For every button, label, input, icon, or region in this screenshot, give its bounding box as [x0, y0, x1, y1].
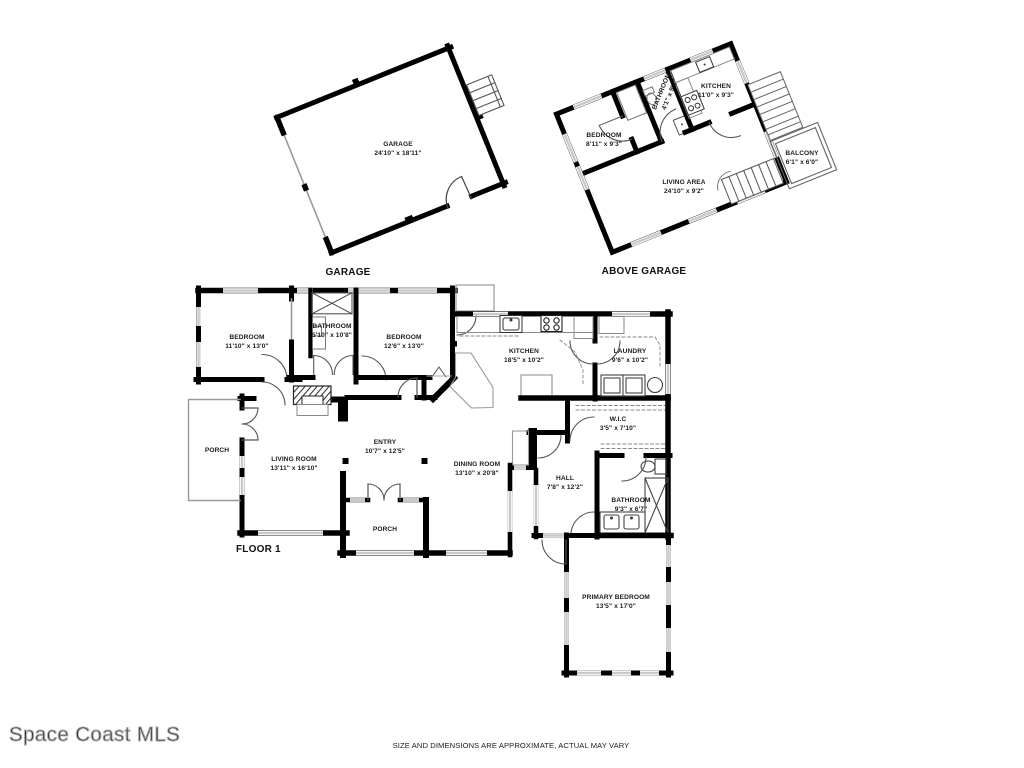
svg-text:7'8" x 12'2": 7'8" x 12'2"	[547, 484, 583, 491]
svg-text:ABOVE GARAGE: ABOVE GARAGE	[602, 266, 687, 277]
svg-text:LAUNDRY: LAUNDRY	[614, 348, 647, 355]
svg-text:KITCHEN: KITCHEN	[509, 348, 539, 355]
svg-text:11'10" x 13'0": 11'10" x 13'0"	[225, 343, 268, 350]
svg-text:9'6" x 10'2": 9'6" x 10'2"	[612, 357, 648, 364]
svg-text:LIVING AREA: LIVING AREA	[662, 179, 705, 186]
svg-text:KITCHEN: KITCHEN	[701, 83, 731, 90]
svg-text:5'10" x 10'8": 5'10" x 10'8"	[312, 332, 352, 339]
svg-text:24'10" x 18'11": 24'10" x 18'11"	[374, 150, 421, 157]
svg-text:PORCH: PORCH	[373, 526, 397, 533]
svg-text:11'0" x 9'3": 11'0" x 9'3"	[698, 92, 734, 99]
svg-text:9'3" x 6'7": 9'3" x 6'7"	[615, 506, 648, 513]
svg-text:BATHROOM: BATHROOM	[312, 323, 352, 330]
svg-text:24'10" x 9'2": 24'10" x 9'2"	[664, 188, 704, 195]
svg-text:6'1" x 6'0": 6'1" x 6'0"	[786, 159, 819, 166]
svg-text:13'5" x 17'0": 13'5" x 17'0"	[596, 603, 636, 610]
svg-text:BEDROOM: BEDROOM	[386, 334, 422, 341]
svg-text:13'10" x 20'8": 13'10" x 20'8"	[455, 470, 499, 477]
svg-text:BEDROOM: BEDROOM	[586, 132, 622, 139]
svg-text:Space Coast MLS: Space Coast MLS	[9, 723, 180, 746]
svg-text:10'7" x 12'5": 10'7" x 12'5"	[365, 448, 405, 455]
svg-text:18'5" x 10'2": 18'5" x 10'2"	[504, 357, 544, 364]
svg-text:8'11" x 9'3": 8'11" x 9'3"	[586, 141, 622, 148]
svg-text:3'5" x 7'10": 3'5" x 7'10"	[600, 425, 636, 432]
svg-text:SIZE AND DIMENSIONS ARE APPROX: SIZE AND DIMENSIONS ARE APPROXIMATE, ACT…	[393, 741, 630, 750]
svg-text:PRIMARY BEDROOM: PRIMARY BEDROOM	[582, 594, 650, 601]
svg-text:LIVING ROOM: LIVING ROOM	[271, 456, 317, 463]
svg-text:GARAGE: GARAGE	[383, 141, 413, 148]
svg-text:GARAGE: GARAGE	[325, 267, 370, 278]
svg-text:BEDROOM: BEDROOM	[229, 334, 265, 341]
svg-text:PORCH: PORCH	[205, 447, 229, 454]
svg-text:12'6" x 13'0": 12'6" x 13'0"	[384, 343, 424, 350]
svg-text:BATHROOM: BATHROOM	[611, 497, 651, 504]
svg-text:W.I.C: W.I.C	[610, 416, 627, 423]
svg-text:BALCONY: BALCONY	[785, 150, 819, 157]
svg-text:HALL: HALL	[556, 475, 574, 482]
svg-text:13'11" x 16'10": 13'11" x 16'10"	[270, 465, 317, 472]
svg-text:FLOOR 1: FLOOR 1	[236, 544, 281, 555]
svg-text:ENTRY: ENTRY	[374, 439, 397, 446]
svg-text:DINING ROOM: DINING ROOM	[454, 461, 501, 468]
